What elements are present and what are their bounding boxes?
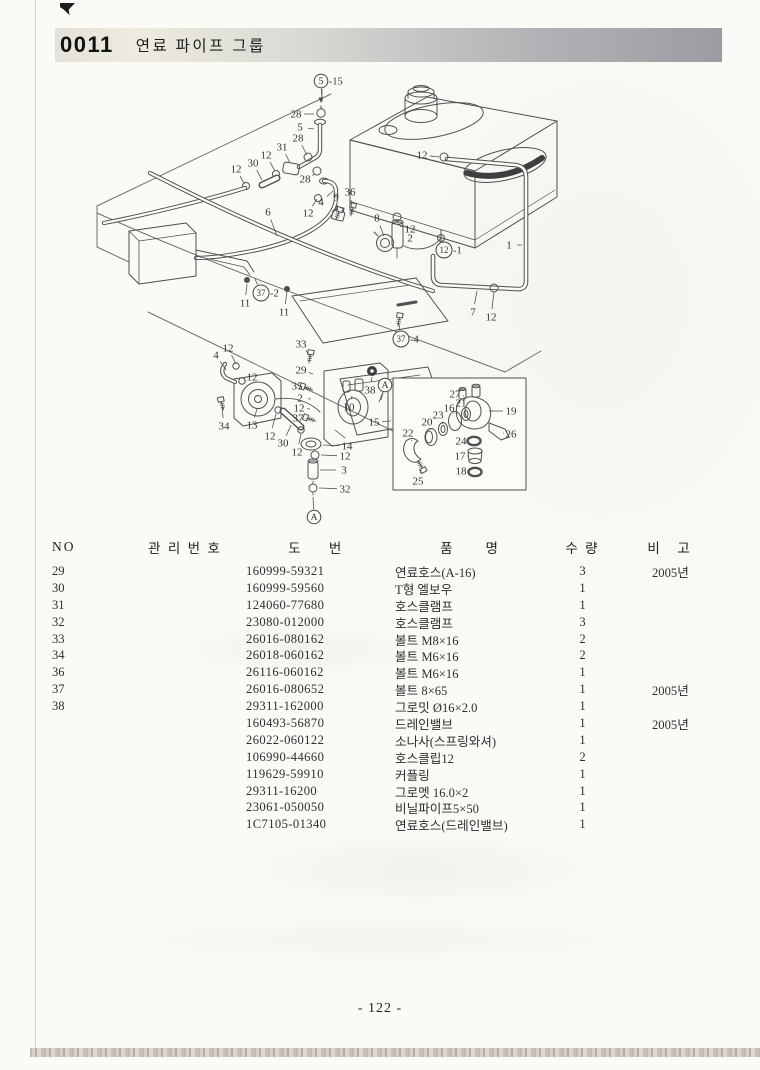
callout-leader [271,219,277,236]
table-row: 26022-060122소나사(스프링와셔)1 [40,731,724,748]
table-row: 30160999-59560T형 엘보우1 [40,579,724,596]
callout-leader [380,225,384,236]
parts-table-header-row: NO관 리 번 호도 번품 명수 량비 고 [40,535,724,559]
cell-drawing-no: 26016-080652 [240,682,390,697]
ref-marker-label: 37 [397,334,407,344]
callout-label: 12 [303,208,314,220]
fuel-outlet-parts [331,206,441,402]
callout-label: 4 [213,350,219,362]
diagram-callouts: 2852831123012284126936812122171211113341… [213,109,522,496]
callout-label: 31 [277,142,288,154]
column-header: 수 량 [550,537,615,557]
callout-label: 12 [231,164,242,176]
ref-marker-circle [378,378,392,392]
callout-label: 30 [278,438,290,450]
callout-label: 11 [240,298,251,310]
callout-label: 27 [450,389,462,401]
callout-label: 2 [297,393,303,405]
callout-leader [308,128,314,129]
cell-drawing-no: 124060-77680 [240,598,390,613]
cell-qty: 2 [550,750,615,765]
ref-marker-leader [399,324,400,330]
cell-note: 2005년 [615,562,724,581]
callout-label: 12 [292,447,303,459]
callout-label: 23 [433,410,445,422]
table-row: 3626116-060162볼트 M6×161 [40,663,724,680]
ref-marker-label: 5 [319,77,324,87]
table-row: 29160999-59321연료호스(A-16)32005년 [40,562,724,579]
callout-leader [351,396,352,399]
table-row: 31124060-77680호스클램프1 [40,596,724,613]
callout-leader [400,226,402,227]
table-row: 3326016-080162볼트 M8×162 [40,630,724,647]
fuel-hose-top-chain [104,89,336,258]
parts-table-body: 29160999-59321연료호스(A-16)32005년30160999-5… [40,562,724,832]
callout-label: 18 [456,466,468,478]
callout-label: 1 [506,240,512,252]
callout-label: 28 [293,133,305,145]
callout-label: 19 [506,406,518,418]
callout-label: 20 [422,417,434,429]
ref-marker-leader [381,393,383,400]
callout-leader [382,421,391,422]
cell-no: 38 [40,699,130,714]
callout-leader [492,292,494,309]
ref-marker-circle [436,242,452,258]
callout-label: 6 [265,207,271,219]
callout-leader [474,291,477,304]
mounting-plates [292,278,448,435]
table-row: 1C7105-01340연료호스(드레인밸브)1 [40,815,724,832]
section-title: 연료 파이프 그룹 [136,34,266,56]
detail-inset-box [393,378,526,490]
callout-leader [302,145,307,155]
ref-marker-circle [314,74,328,88]
callout-label: 26 [506,429,518,441]
cell-drawing-no: 26116-060162 [240,665,390,680]
cell-qty: 1 [550,682,615,697]
callout-label: 38 [365,385,377,397]
callout-label: 12 [247,372,258,384]
cell-qty: 1 [550,665,615,680]
callout-leader [286,154,290,163]
cell-qty: 2 [550,648,615,663]
cell-drawing-no: 119629-59910 [240,767,390,782]
cell-note: 2005년 [615,680,724,699]
cell-part-name: 연료호스(드레인밸브) [390,815,550,834]
cell-drawing-no: 160999-59321 [240,564,390,579]
callout-label: 15 [369,417,381,429]
callout-label: 12 [265,431,276,443]
callout-leader [306,350,310,356]
callout-leader [312,174,315,175]
callout-label: 13 [247,420,259,432]
column-header: 품 명 [390,537,550,557]
callout-label: 12 [223,343,234,355]
page-number: - 122 - [0,1001,760,1017]
callout-label: 12 [417,150,428,162]
cell-note: 2005년 [615,714,724,733]
callout-leader [220,362,226,370]
callout-label: 12 [486,312,497,324]
callout-label: 28 [300,174,312,186]
callout-label: 12 [405,224,416,236]
callout-leader [351,200,352,208]
ref-marker-leader [255,279,257,285]
callout-leader [309,373,313,374]
fuel-cock-inset [393,378,526,490]
table-row: 160493-56870드레인밸브12005년 [40,714,724,731]
column-header: 관 리 번 호 [130,537,240,557]
callout-leader [312,199,317,206]
ref-marker-circle [253,285,269,301]
ref-marker-leader [321,89,322,101]
callout-label: 3 [341,465,347,477]
callout-label: 9 [333,192,339,204]
cell-qty: 3 [550,564,615,579]
callout-leader [240,176,244,183]
callout-label: 25 [413,476,425,488]
callout-label: 34 [219,421,231,433]
callout-label: 33 [296,339,308,351]
ref-marker-suffix: -2 [270,289,279,300]
scan-corner-mark [60,3,75,15]
cell-drawing-no: 23080-012000 [240,615,390,630]
catalog-page: 0011 연료 파이프 그룹 [0,0,760,1070]
callout-label: 32 [340,484,351,496]
ref-marker-label: 37 [257,288,267,298]
callout-label: 2 [407,233,413,245]
cell-no: 33 [40,632,130,647]
cell-drawing-no: 26016-080162 [240,632,390,647]
cell-drawing-no: 160493-56870 [240,716,390,731]
callout-leader [272,414,276,428]
callout-label: 12 [261,150,272,162]
callout-leader [286,425,291,436]
diagram-ref-markers: 5-1512-137-237-4AA [253,74,462,524]
callout-label: 12 [340,451,351,463]
callout-label: 35 [292,381,304,393]
fuel-strainer-assembly [301,363,388,495]
table-row: 23061-050050비닐파이프5×501 [40,798,724,815]
cell-drawing-no: 26022-060122 [240,733,390,748]
fuel-tank [350,86,557,249]
callout-label: 29 [296,365,308,377]
callout-label: 8 [374,213,380,225]
table-row: 3829311-162000그로밋 Ø16×2.01 [40,697,724,714]
table-row: 106990-44660호스클립122 [40,748,724,765]
callout-label: 24 [456,436,468,448]
table-row: 29311-16200그로멧 16.0×21 [40,782,724,799]
callout-label: 28 [291,109,303,121]
callout-leader [430,156,439,157]
callout-leader [442,422,443,424]
callout-label: 12 [294,403,305,415]
callout-leader [321,455,337,456]
callout-leader [420,470,421,473]
callout-label: 5 [297,122,303,134]
cell-no: 30 [40,581,130,596]
cell-drawing-no: 160999-59560 [240,581,390,596]
ref-marker-label: 12 [440,245,449,255]
callout-label: 4 [318,197,324,209]
parts-table: NO관 리 번 호도 번품 명수 량비 고 29160999-59321연료호스… [40,535,724,832]
fuel-hose-6 [150,173,433,291]
cell-drawing-no: 1C7105-01340 [240,817,390,832]
ref-marker-circle [307,510,321,524]
cell-no: 32 [40,615,130,630]
callout-label: 37 [293,413,305,425]
cell-qty: 1 [550,581,615,596]
callout-leader [327,191,333,197]
ref-marker-suffix: -1 [453,246,462,257]
callout-leader [270,162,275,171]
callout-label: 21 [456,398,467,410]
callout-leader [222,407,223,418]
cell-drawing-no: 23061-050050 [240,800,390,815]
cell-qty: 1 [550,733,615,748]
ref-marker-label: A [382,381,389,391]
ref-marker-label: A [311,513,318,523]
ref-marker-suffix: -4 [410,335,419,346]
table-row: 3726016-080652볼트 8×6512005년 [40,680,724,697]
cell-drawing-no: 29311-16200 [240,784,390,799]
cell-qty: 1 [550,817,615,832]
callout-label: 16 [444,403,456,415]
cell-no: 31 [40,598,130,613]
scan-edge-strip [30,1048,760,1057]
callout-leader [285,292,287,304]
cell-drawing-no: 106990-44660 [240,750,390,765]
callout-leader [337,205,338,212]
section-code: 0011 [60,32,114,58]
callout-label: 30 [248,158,260,170]
cell-qty: 1 [550,767,615,782]
cell-qty: 1 [550,784,615,799]
callout-label: 17 [455,451,467,463]
cell-drawing-no: 26018-060162 [240,648,390,663]
callout-leader [257,170,262,180]
cell-qty: 2 [550,632,615,647]
engine-frame-lines [97,94,541,449]
bolt-glyphs [217,203,427,474]
cell-qty: 1 [550,699,615,714]
section-header-bar: 0011 연료 파이프 그룹 [55,28,722,62]
cell-qty: 1 [550,800,615,815]
callout-label: 14 [342,441,354,453]
callout-leader [319,488,337,489]
cell-no: 34 [40,648,130,663]
callout-leader [232,355,236,364]
cell-qty: 1 [550,716,615,731]
table-row: 3426018-060162볼트 M6×162 [40,646,724,663]
table-row: 119629-59910커플링1 [40,765,724,782]
cell-qty: 3 [550,615,615,630]
float-chamber [129,223,290,292]
callout-leader [254,409,257,417]
cell-no: 29 [40,564,130,579]
column-header: NO [40,539,130,555]
column-header: 비 고 [615,537,724,557]
callout-label: 7 [470,307,476,319]
callout-label: 22 [403,428,414,440]
callout-leader [246,284,247,295]
cell-no: 36 [40,665,130,680]
ref-marker-leader [313,497,314,509]
column-header: 도 번 [240,537,390,557]
ref-marker-circle [393,331,409,347]
page-edge-line [35,0,36,1048]
ref-marker-suffix: -15 [329,77,343,88]
callout-label: 11 [279,307,290,319]
cell-no: 37 [40,682,130,697]
cell-qty: 1 [550,598,615,613]
callout-label: 36 [345,187,357,199]
callout-leader [323,445,339,446]
callout-leader [299,434,301,444]
fuel-pipe-loop [433,153,526,292]
cell-drawing-no: 29311-162000 [240,699,390,714]
fuel-pump [222,363,320,433]
table-row: 3223080-012000호스클램프3 [40,613,724,630]
callout-label: 10 [344,402,356,414]
callout-leader [371,377,372,382]
